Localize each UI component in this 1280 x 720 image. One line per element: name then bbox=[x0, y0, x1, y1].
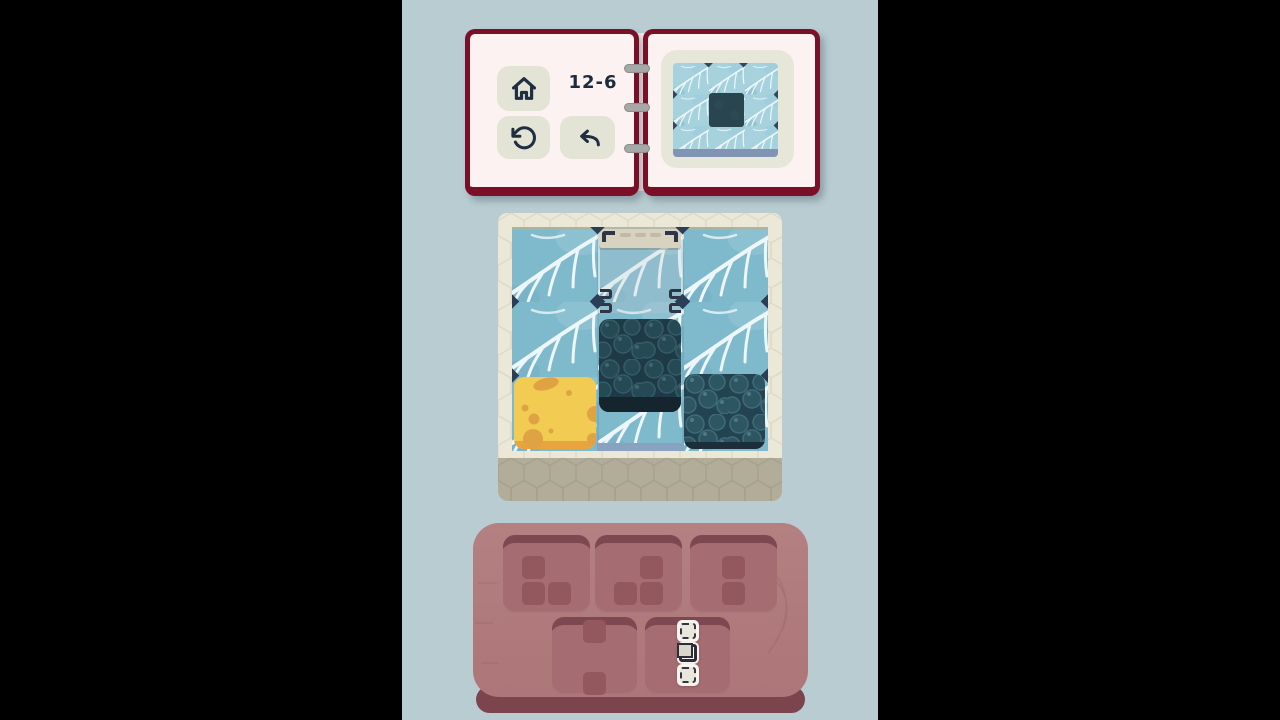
game-area: 12-6 bbox=[402, 0, 878, 720]
silhouette-square bbox=[722, 556, 745, 579]
silhouette-square bbox=[522, 556, 545, 579]
ghost-square-solid-border bbox=[679, 644, 697, 662]
level-label: 12-6 bbox=[558, 72, 628, 93]
tray-slot-3[interactable] bbox=[690, 535, 777, 613]
silhouette-square bbox=[640, 582, 663, 605]
silhouette-square bbox=[583, 672, 606, 695]
book-page-left: 12-6 bbox=[465, 29, 639, 196]
blueberry-piece-right[interactable] bbox=[684, 374, 765, 449]
clamp-corner-bracket-icon bbox=[665, 231, 678, 242]
home-button[interactable] bbox=[497, 66, 550, 111]
tray-slot-2[interactable] bbox=[595, 535, 682, 613]
preview-center-blueberry-tile bbox=[709, 93, 744, 127]
silhouette-square bbox=[614, 582, 637, 605]
board-front-face bbox=[498, 458, 782, 501]
silhouette-square bbox=[522, 582, 545, 605]
clamp-stitch-dash bbox=[650, 233, 661, 237]
frame-front-hex-texture bbox=[498, 458, 782, 501]
book-page-right bbox=[643, 29, 820, 196]
letterbox-left bbox=[0, 0, 402, 720]
clamp-stitch-dash bbox=[635, 233, 646, 237]
home-icon bbox=[509, 75, 539, 102]
piece-tray bbox=[473, 523, 808, 713]
clamp-stitch-dash bbox=[620, 233, 631, 237]
binding-ring bbox=[624, 144, 650, 153]
ghost-square-dashed-border bbox=[680, 667, 696, 683]
ghost-square-dashed[interactable] bbox=[677, 664, 699, 686]
cheese-piece[interactable] bbox=[514, 377, 596, 449]
ghost-square-solid[interactable] bbox=[677, 642, 699, 664]
silhouette-square bbox=[722, 582, 745, 605]
level-preview-board bbox=[673, 63, 778, 157]
silhouette-square bbox=[548, 582, 571, 605]
silhouette-square bbox=[640, 556, 663, 579]
restart-icon bbox=[510, 124, 538, 152]
ghost-square-inner-chip bbox=[677, 643, 693, 658]
empty-cell-front-edge bbox=[598, 443, 683, 451]
screenshot-stage: 12-6 bbox=[0, 0, 1280, 720]
level-book: 12-6 bbox=[402, 0, 878, 226]
binding-ring bbox=[624, 103, 650, 112]
undo-button[interactable] bbox=[560, 116, 615, 159]
preview-board-front-edge bbox=[673, 149, 778, 157]
tray-slot-4[interactable] bbox=[552, 617, 637, 695]
silhouette-square bbox=[583, 620, 606, 643]
ghost-square-dashed-border bbox=[680, 623, 696, 639]
tray-slot-1[interactable] bbox=[503, 535, 590, 613]
restart-button[interactable] bbox=[497, 116, 550, 159]
placement-clamp-bar bbox=[599, 229, 681, 248]
letterbox-right bbox=[878, 0, 1280, 720]
blueberry-piece-center[interactable] bbox=[599, 319, 681, 412]
puzzle-board[interactable] bbox=[512, 227, 768, 451]
binding-ring bbox=[624, 64, 650, 73]
level-preview-card bbox=[661, 50, 794, 168]
tray-body bbox=[473, 523, 808, 697]
undo-icon bbox=[573, 125, 603, 151]
ghost-square-dashed[interactable] bbox=[677, 620, 699, 642]
clamp-corner-bracket-icon bbox=[602, 231, 615, 242]
tray-slot-5[interactable] bbox=[645, 617, 730, 695]
